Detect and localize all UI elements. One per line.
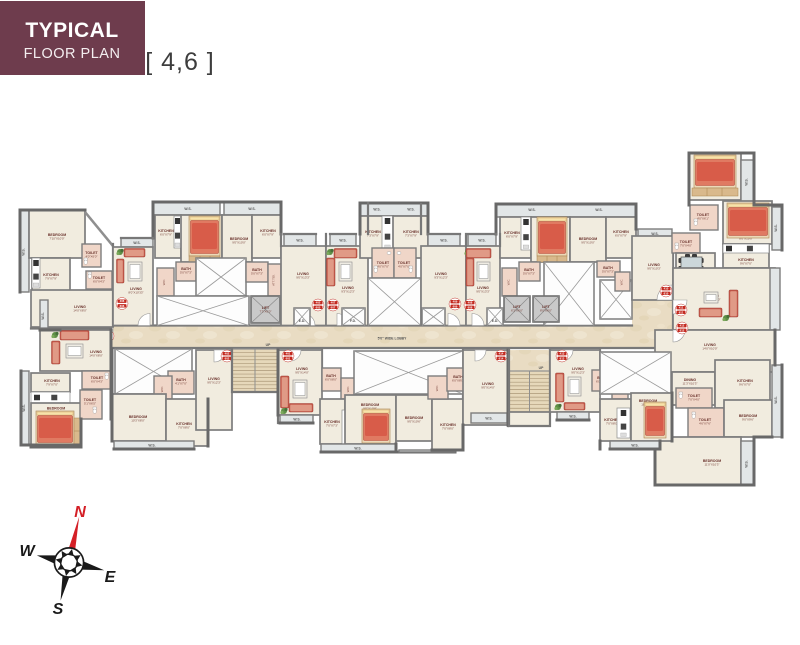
svg-text:9'0"X9'6": 9'0"X9'6" xyxy=(742,418,754,422)
svg-text:606: 606 xyxy=(120,304,125,308)
svg-text:W: W xyxy=(19,543,36,560)
svg-text:7'0"X8'0": 7'0"X8'0" xyxy=(178,426,190,430)
svg-text:10'3"X8'0": 10'3"X8'0" xyxy=(131,419,145,423)
svg-text:9'3"X12'3": 9'3"X12'3" xyxy=(434,276,448,280)
svg-text:W.C.: W.C. xyxy=(435,385,439,392)
svg-text:5'0"X7'3": 5'0"X7'3" xyxy=(251,272,263,276)
svg-text:614: 614 xyxy=(499,357,504,361)
svg-text:FLOOR PLAN: FLOOR PLAN xyxy=(24,46,121,62)
svg-text:4'0"X6'1": 4'0"X6'1" xyxy=(697,217,709,221)
svg-text:8'0"X6'0": 8'0"X6'0" xyxy=(540,309,552,313)
svg-text:11'3"X10'3": 11'3"X10'3" xyxy=(682,382,697,386)
svg-text:W.S.: W.S. xyxy=(41,312,45,319)
svg-text:TYPICAL: TYPICAL xyxy=(25,19,118,42)
svg-text:6'0"X4'3": 6'0"X4'3" xyxy=(91,380,103,384)
svg-text:601: 601 xyxy=(286,357,291,361)
svg-text:W.S.: W.S. xyxy=(745,178,749,185)
svg-text:609: 609 xyxy=(453,305,458,309)
svg-text:W.S.: W.S. xyxy=(148,444,155,448)
svg-text:5'0"X7'3": 5'0"X7'3" xyxy=(180,271,192,275)
svg-text:613: 613 xyxy=(560,357,565,361)
svg-text:W.S.: W.S. xyxy=(631,444,638,448)
svg-text:W.S.: W.S. xyxy=(569,415,576,419)
svg-text:W.S.: W.S. xyxy=(485,417,492,421)
svg-text:14'0"X10'0": 14'0"X10'0" xyxy=(702,347,717,351)
svg-text:414: 414 xyxy=(499,352,504,356)
svg-text:612: 612 xyxy=(680,329,685,333)
svg-text:W.S.: W.S. xyxy=(745,460,749,467)
svg-text:7'0"X8'0": 7'0"X8'0" xyxy=(606,422,618,426)
svg-text:W.S.: W.S. xyxy=(22,404,26,411)
svg-text:9'0"X13'3": 9'0"X13'3" xyxy=(296,276,310,280)
svg-text:W.S.: W.S. xyxy=(22,248,26,255)
svg-text:W.S.: W.S. xyxy=(407,208,414,212)
svg-text:6'0"X7'9": 6'0"X7'9" xyxy=(262,233,274,237)
svg-text:6'0"X8'0": 6'0"X8'0" xyxy=(325,378,337,382)
svg-text:E.D.: E.D. xyxy=(299,319,306,323)
svg-text:7'0"X8'0": 7'0"X8'0" xyxy=(442,427,454,431)
svg-text:9'0"X10'6": 9'0"X10'6" xyxy=(407,420,421,424)
svg-text:9'0"X12'3": 9'0"X12'3" xyxy=(571,371,585,375)
svg-text:6'0"X7'9": 6'0"X7'9" xyxy=(506,235,518,239)
svg-text:W.S.: W.S. xyxy=(296,239,303,243)
svg-text:409: 409 xyxy=(453,300,458,304)
svg-text:7'3"X6'0": 7'3"X6'0" xyxy=(260,310,272,314)
svg-text:5'1"X6'5": 5'1"X6'5" xyxy=(84,402,96,406)
svg-text:4'0"X7'0": 4'0"X7'0" xyxy=(377,265,389,269)
svg-text:8'0"X10'33": 8'0"X10'33" xyxy=(128,291,143,295)
svg-text:9'0"X10'0": 9'0"X10'0" xyxy=(232,241,246,245)
svg-text:6'0"X7'9": 6'0"X7'9" xyxy=(160,233,172,237)
svg-text:S: S xyxy=(53,601,64,618)
svg-text:9'0"X12'3": 9'0"X12'3" xyxy=(207,381,221,385)
svg-text:402: 402 xyxy=(225,352,230,356)
svg-text:UP: UP xyxy=(539,366,544,370)
svg-text:UP: UP xyxy=(266,343,271,347)
svg-text:W.C.: W.C. xyxy=(620,279,624,286)
svg-text:7'9"X7'9": 7'9"X7'9" xyxy=(45,277,57,281)
svg-text:W.S.: W.S. xyxy=(339,239,346,243)
svg-text:W.S.: W.S. xyxy=(354,447,361,451)
svg-text:5'0" WIDE LOBBY: 5'0" WIDE LOBBY xyxy=(378,337,408,341)
svg-text:7'10"X10'0": 7'10"X10'0" xyxy=(49,237,64,241)
svg-text:W.C.: W.C. xyxy=(160,386,164,393)
svg-text:[ 4,6 ]: [ 4,6 ] xyxy=(145,48,215,76)
svg-text:W.S.: W.S. xyxy=(133,241,140,245)
svg-text:6'0"X4'3": 6'0"X4'3" xyxy=(93,280,105,284)
svg-text:W.S.: W.S. xyxy=(774,224,778,231)
svg-text:14'0"X8'0": 14'0"X8'0" xyxy=(73,309,87,313)
svg-text:410: 410 xyxy=(664,287,669,291)
svg-text:N: N xyxy=(74,504,86,521)
svg-text:W.S.: W.S. xyxy=(774,396,778,403)
svg-text:4'1"X7'0": 4'1"X7'0" xyxy=(175,382,187,386)
svg-text:ATT.TOI.: ATT.TOI. xyxy=(272,274,276,286)
svg-text:F.D.: F.D. xyxy=(350,319,356,323)
svg-text:W.S.: W.S. xyxy=(373,208,380,212)
svg-text:9'0"X10'3": 9'0"X10'3" xyxy=(647,267,661,271)
svg-text:7'0"X4'0": 7'0"X4'0" xyxy=(680,244,692,248)
svg-text:E.D.: E.D. xyxy=(492,319,499,323)
svg-text:406: 406 xyxy=(120,299,125,303)
svg-text:412: 412 xyxy=(680,324,685,328)
svg-text:7'9"X7'0": 7'9"X7'0" xyxy=(46,383,58,387)
svg-text:608: 608 xyxy=(468,306,473,310)
svg-text:11'0"X10'3": 11'0"X10'3" xyxy=(704,463,719,467)
svg-text:9'0"X13'3": 9'0"X13'3" xyxy=(476,290,490,294)
svg-text:411: 411 xyxy=(679,306,684,310)
svg-text:W.S.: W.S. xyxy=(595,208,602,212)
svg-text:9'0"X14'0": 9'0"X14'0" xyxy=(481,386,495,390)
svg-text:610: 610 xyxy=(664,292,669,296)
svg-text:W.C.: W.C. xyxy=(162,279,166,286)
svg-text:5'0"X7'3": 5'0"X7'3" xyxy=(602,270,614,274)
svg-text:607: 607 xyxy=(331,306,336,310)
svg-text:W.S.: W.S. xyxy=(293,418,300,422)
svg-text:7'0"X4'0": 7'0"X4'0" xyxy=(688,398,700,402)
svg-text:14'0"X8'0": 14'0"X8'0" xyxy=(89,354,103,358)
svg-text:W.S.: W.S. xyxy=(248,207,255,211)
svg-text:407: 407 xyxy=(331,301,336,305)
svg-text:6'3"X6'0": 6'3"X6'0" xyxy=(511,309,523,313)
svg-text:W.S.: W.S. xyxy=(528,208,535,212)
svg-text:W.S.: W.S. xyxy=(440,239,447,243)
svg-text:9'3"X12'3": 9'3"X12'3" xyxy=(341,290,355,294)
svg-text:7'3"X7'9": 7'3"X7'9" xyxy=(405,234,417,238)
svg-text:9'0"X14'0": 9'0"X14'0" xyxy=(295,371,309,375)
svg-text:4'6"X7'6": 4'6"X7'6" xyxy=(699,422,711,426)
svg-text:7'0"X7'3": 7'0"X7'3" xyxy=(326,424,338,428)
svg-text:9'6"X7'0": 9'6"X7'0" xyxy=(739,383,751,387)
svg-text:405: 405 xyxy=(316,301,321,305)
svg-text:408: 408 xyxy=(468,301,473,305)
svg-text:4'0"X7'0": 4'0"X7'0" xyxy=(398,265,410,269)
svg-text:9'6"X7'0": 9'6"X7'0" xyxy=(740,262,752,266)
svg-text:W.C.: W.C. xyxy=(346,386,350,393)
svg-text:W.S.: W.S. xyxy=(184,207,191,211)
svg-text:413: 413 xyxy=(560,352,565,356)
svg-text:611: 611 xyxy=(679,311,684,315)
svg-text:W.S.: W.S. xyxy=(478,239,485,243)
svg-text:602: 602 xyxy=(225,357,230,361)
svg-text:W.C.: W.C. xyxy=(507,279,511,286)
svg-text:401: 401 xyxy=(286,352,291,356)
svg-text:605: 605 xyxy=(316,306,321,310)
svg-text:5'0"X7'3": 5'0"X7'3" xyxy=(523,272,535,276)
svg-text:E: E xyxy=(105,569,117,586)
svg-text:6'0"X7'9": 6'0"X7'9" xyxy=(615,234,627,238)
svg-text:9'0"X10'0": 9'0"X10'0" xyxy=(581,241,595,245)
